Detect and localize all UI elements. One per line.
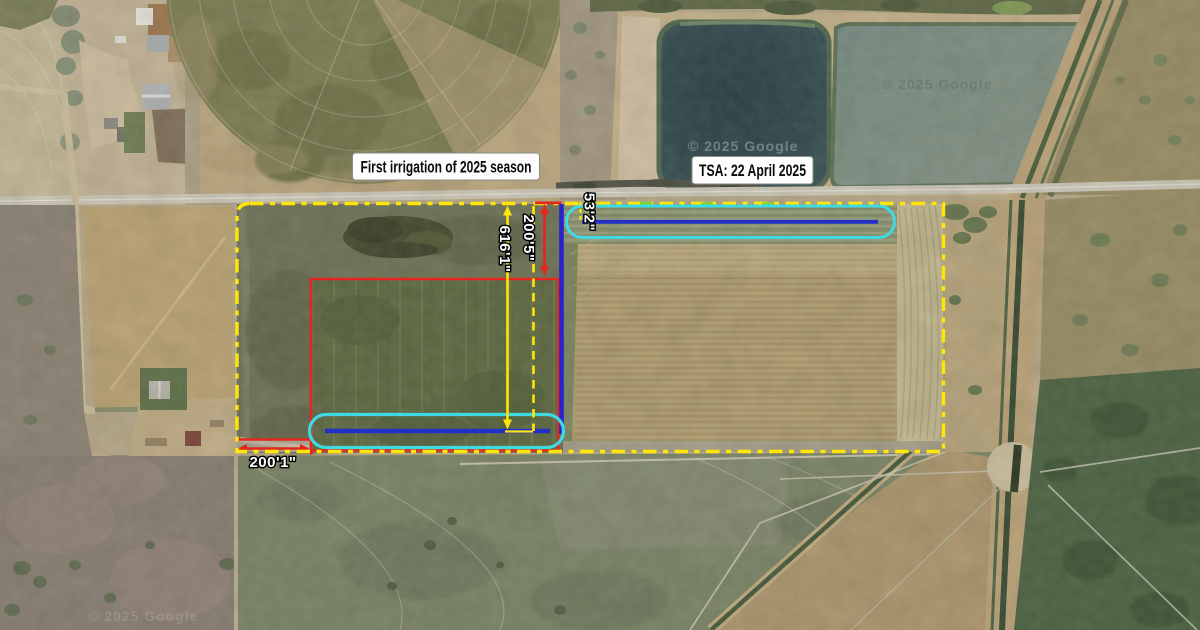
- svg-text:200'1": 200'1": [249, 454, 296, 471]
- svg-text:200'5": 200'5": [520, 214, 537, 261]
- svg-text:© 2025 Google: © 2025 Google: [882, 76, 992, 92]
- svg-text:53'2": 53'2": [581, 193, 598, 231]
- svg-text:First irrigation of 2025 seaso: First irrigation of 2025 season: [361, 159, 532, 177]
- svg-text:© 2025 Google: © 2025 Google: [88, 608, 198, 624]
- svg-text:616'1": 616'1": [496, 225, 513, 272]
- svg-text:© 2025 Google: © 2025 Google: [688, 138, 798, 154]
- svg-text:TSA: 22 April 2025: TSA: 22 April 2025: [699, 162, 806, 180]
